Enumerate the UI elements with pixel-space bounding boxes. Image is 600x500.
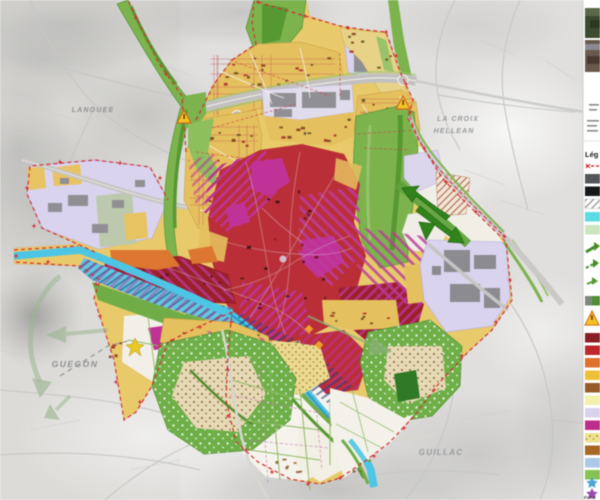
svg-text:LANOUEE: LANOUEE [72,107,115,114]
svg-text:HELLEAN: HELLEAN [434,128,475,135]
svg-text:LA CROIX: LA CROIX [437,116,479,123]
svg-text:GUEGON: GUEGON [52,359,99,369]
svg-text:Lég: Lég [585,150,599,159]
svg-text:Fond: Fond [584,495,595,500]
svg-text:GUILLAC: GUILLAC [419,448,464,457]
